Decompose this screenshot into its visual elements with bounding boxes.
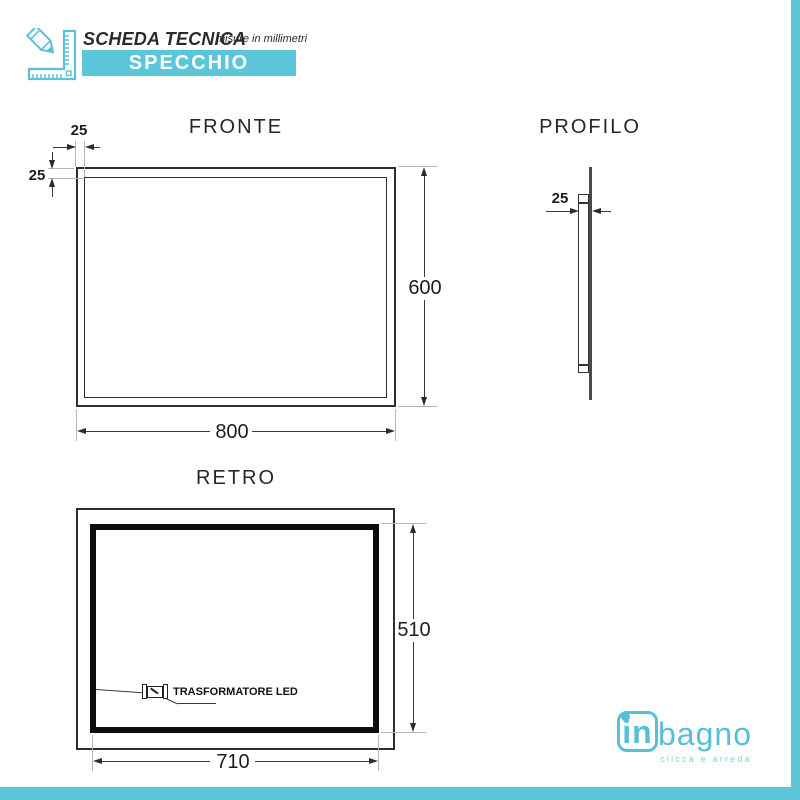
- fronte-inner-frame: [84, 177, 387, 398]
- profilo-frame-cap-top: [578, 202, 589, 204]
- product-banner: SPECCHIO: [82, 50, 296, 76]
- fronte-dim-frame-left: 25: [24, 167, 50, 184]
- dimension-line: [600, 211, 611, 212]
- retro-dim-height: 510: [393, 619, 435, 642]
- fronte-dim-frame-top: 25: [64, 122, 94, 139]
- arrowhead: [410, 723, 416, 732]
- dimension-line: [413, 532, 414, 619]
- dimension-line: [85, 431, 210, 432]
- extension-line: [92, 735, 93, 771]
- retro-led-frame: [90, 524, 379, 733]
- extension-line: [378, 735, 379, 771]
- arrowhead: [93, 758, 102, 764]
- arrowhead: [49, 178, 55, 187]
- bottom-accent-band: [0, 787, 800, 800]
- dimension-line: [53, 147, 67, 148]
- dimension-line: [52, 187, 53, 197]
- arrowhead: [386, 428, 395, 434]
- arrowhead: [421, 397, 427, 406]
- fronte-dim-height: 600: [404, 277, 446, 300]
- dimension-line: [93, 147, 100, 148]
- arrowhead: [77, 428, 86, 434]
- profilo-frame-bar: [578, 194, 589, 373]
- extension-line: [381, 523, 426, 524]
- logo-tagline: clicca e arreda: [652, 754, 760, 764]
- dimension-line: [424, 175, 425, 277]
- extension-line: [398, 406, 437, 407]
- extension-line: [395, 409, 396, 441]
- dimension-line: [255, 761, 370, 762]
- profilo-mirror-glass: [589, 167, 592, 400]
- dimension-line: [546, 211, 570, 212]
- fronte-title: FRONTE: [136, 116, 336, 139]
- profilo-frame-cap-bottom: [578, 364, 589, 366]
- arrowhead: [592, 208, 601, 214]
- right-accent-band: [791, 0, 800, 800]
- retro-dim-width: 710: [210, 751, 256, 774]
- sheet-subtitle: misure in millimetri: [216, 33, 307, 45]
- arrowhead: [410, 524, 416, 533]
- dimension-line: [101, 761, 210, 762]
- extension-line: [398, 166, 437, 167]
- logo-bagno-text: bagno: [658, 717, 752, 752]
- transformer-cable-horizontal: [178, 703, 216, 704]
- dimension-line: [413, 642, 414, 725]
- arrowhead: [85, 144, 94, 150]
- arrowhead: [67, 144, 76, 150]
- profilo-title: PROFILO: [490, 116, 690, 139]
- ruler-pencil-icon: [26, 28, 78, 82]
- profilo-dim-depth: 25: [546, 190, 574, 207]
- arrowhead: [369, 758, 378, 764]
- arrowhead: [49, 160, 55, 169]
- arrowhead: [421, 167, 427, 176]
- dimension-line: [424, 300, 425, 400]
- fronte-dim-width: 800: [206, 421, 258, 444]
- technical-sheet: SCHEDA TECNICA misure in millimetri SPEC…: [0, 0, 800, 800]
- transformer-symbol: [142, 684, 168, 699]
- extension-line: [381, 732, 426, 733]
- transformer-label: TRASFORMATORE LED: [173, 686, 298, 698]
- arrowhead: [570, 208, 579, 214]
- extension-line: [76, 409, 77, 441]
- retro-title: RETRO: [136, 467, 336, 490]
- dimension-line: [252, 431, 387, 432]
